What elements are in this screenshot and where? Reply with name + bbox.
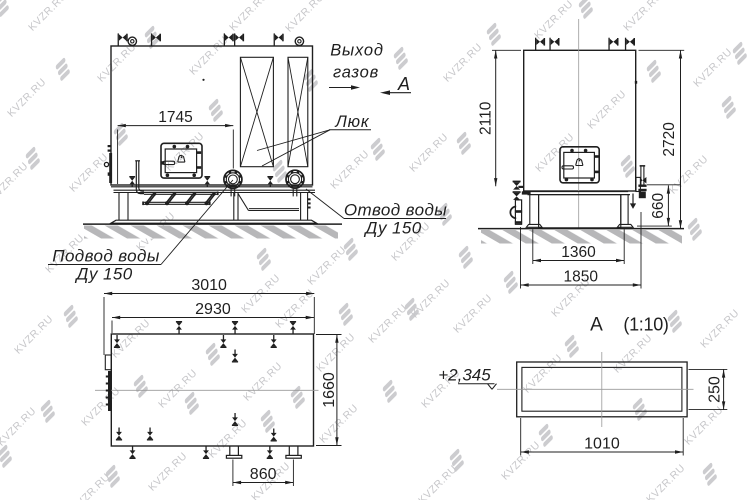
svg-text:3010: 3010 <box>191 277 227 294</box>
svg-text:1360: 1360 <box>561 244 596 261</box>
svg-text:KVZR.RU: KVZR.RU <box>95 41 139 85</box>
svg-text:KVZR.RU: KVZR.RU <box>441 41 485 85</box>
svg-text:(1:10): (1:10) <box>623 315 668 335</box>
svg-text:2930: 2930 <box>195 301 231 318</box>
svg-text:1660: 1660 <box>321 372 338 408</box>
svg-text:1010: 1010 <box>584 436 620 453</box>
svg-text:KVZR.RU: KVZR.RU <box>146 450 190 494</box>
svg-text:KVZR.RU: KVZR.RU <box>328 148 372 192</box>
svg-text:KVZR.RU: KVZR.RU <box>644 462 688 500</box>
svg-text:Ду 150: Ду 150 <box>363 219 421 238</box>
svg-text:Подвод воды: Подвод воды <box>52 247 160 266</box>
svg-text:Ду 150: Ду 150 <box>74 265 132 284</box>
svg-text:+2,345: +2,345 <box>438 366 491 385</box>
svg-text:KVZR.RU: KVZR.RU <box>12 313 56 357</box>
svg-text:1745: 1745 <box>158 109 192 126</box>
svg-text:2110: 2110 <box>478 101 495 135</box>
svg-text:KVZR.RU: KVZR.RU <box>305 244 349 288</box>
svg-text:KVZR.RU: KVZR.RU <box>241 360 285 404</box>
svg-text:Отвод воды: Отвод воды <box>344 201 447 220</box>
svg-text:1850: 1850 <box>564 269 599 286</box>
svg-text:А: А <box>590 315 603 336</box>
svg-text:газов: газов <box>333 64 379 82</box>
svg-text:А: А <box>397 74 410 94</box>
svg-text:Люк: Люк <box>335 113 370 131</box>
svg-text:KVZR.RU: KVZR.RU <box>67 151 111 195</box>
svg-text:Выход: Выход <box>330 42 384 60</box>
svg-text:KVZR.RU: KVZR.RU <box>611 332 655 376</box>
svg-text:860: 860 <box>250 466 277 483</box>
svg-text:KVZR.RU: KVZR.RU <box>532 0 576 42</box>
svg-text:250: 250 <box>707 376 724 403</box>
svg-text:KVZR.RU: KVZR.RU <box>283 0 327 35</box>
svg-text:KVZR.RU: KVZR.RU <box>314 331 358 375</box>
svg-text:2720: 2720 <box>661 122 678 157</box>
svg-text:KVZR.RU: KVZR.RU <box>366 302 410 346</box>
svg-text:KVZR.RU: KVZR.RU <box>691 46 735 90</box>
svg-text:KVZR.RU: KVZR.RU <box>667 153 711 197</box>
svg-text:KVZR.RU: KVZR.RU <box>109 317 153 361</box>
svg-text:KVZR.RU: KVZR.RU <box>621 0 665 34</box>
svg-text:660: 660 <box>650 192 667 218</box>
svg-text:KVZR.RU: KVZR.RU <box>682 404 726 448</box>
svg-text:KVZR.RU: KVZR.RU <box>451 292 495 336</box>
svg-text:KVZR.RU: KVZR.RU <box>416 463 460 500</box>
svg-text:KVZR.RU: KVZR.RU <box>698 307 742 351</box>
svg-text:KVZR.RU: KVZR.RU <box>0 405 39 449</box>
svg-text:KVZR.RU: KVZR.RU <box>206 417 250 461</box>
svg-text:KVZR.RU: KVZR.RU <box>227 0 271 34</box>
svg-text:KVZR.RU: KVZR.RU <box>585 88 629 132</box>
svg-text:KVZR.RU: KVZR.RU <box>26 0 70 34</box>
svg-text:KVZR.RU: KVZR.RU <box>0 160 31 204</box>
svg-text:KVZR.RU: KVZR.RU <box>407 131 451 175</box>
svg-text:KVZR.RU: KVZR.RU <box>5 76 49 120</box>
svg-text:KVZR.RU: KVZR.RU <box>79 385 123 429</box>
